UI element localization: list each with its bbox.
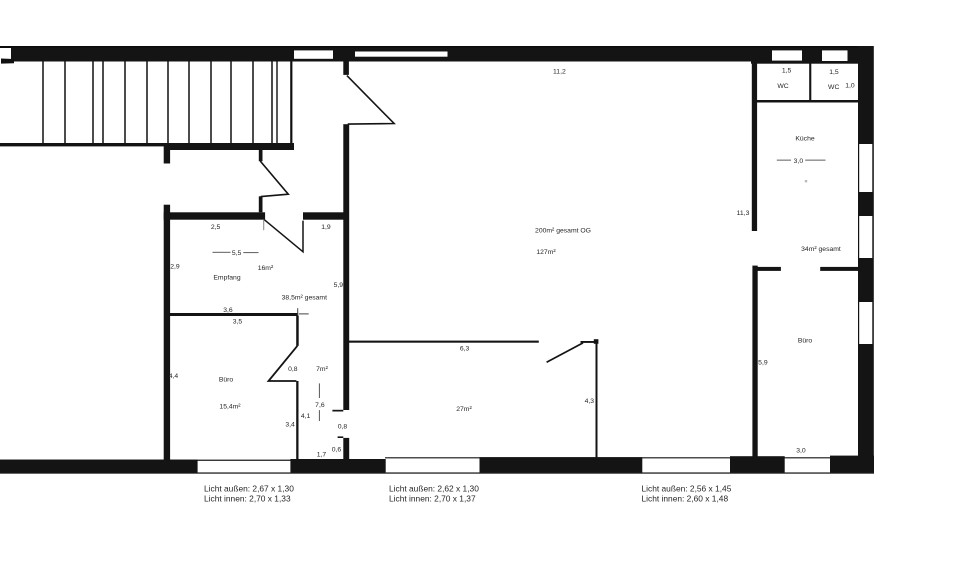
svg-text:11,3: 11,3 [737,210,750,217]
svg-text:Licht außen: 2,56 x 1,45: Licht außen: 2,56 x 1,45 [642,483,732,493]
svg-text:Büro: Büro [219,376,234,383]
svg-text:5,5: 5,5 [232,250,242,257]
svg-text:200m² gesamt OG: 200m² gesamt OG [535,228,591,235]
svg-text:7m²: 7m² [316,366,328,373]
svg-text:3,6: 3,6 [223,307,233,314]
svg-text:0,6: 0,6 [332,447,342,454]
svg-text:WC: WC [828,84,839,91]
svg-text:Küche: Küche [795,135,814,142]
svg-text:27m²: 27m² [456,406,472,413]
svg-text:Büro: Büro [798,337,813,344]
svg-text:34m² gesamt: 34m² gesamt [801,246,841,253]
svg-text:4,3: 4,3 [585,398,595,405]
svg-text:Licht innen: 2,70 x 1,33: Licht innen: 2,70 x 1,33 [204,493,291,503]
svg-text:Licht außen: 2,62 x 1,30: Licht außen: 2,62 x 1,30 [389,483,479,493]
svg-text:3,0: 3,0 [794,158,804,165]
svg-text:5,9: 5,9 [334,282,344,289]
svg-text:2,5: 2,5 [211,224,221,231]
svg-text:15,4m²: 15,4m² [219,403,241,410]
svg-text:4,4: 4,4 [169,373,179,380]
svg-text:1,5: 1,5 [782,68,792,75]
svg-text:0,8: 0,8 [338,423,348,430]
svg-text:1,5: 1,5 [829,69,839,76]
svg-text:3,5: 3,5 [233,318,243,325]
svg-text:2,9: 2,9 [170,263,180,270]
svg-text:1,7: 1,7 [317,452,327,459]
svg-text:Licht innen: 2,70 x 1,37: Licht innen: 2,70 x 1,37 [389,493,476,503]
svg-text:16m²: 16m² [258,265,274,272]
svg-text:4,1: 4,1 [301,413,311,420]
svg-text:WC: WC [777,83,788,90]
svg-text:6,3: 6,3 [460,346,470,353]
svg-text:38,5m² gesamt: 38,5m² gesamt [282,294,327,301]
svg-text:1,0: 1,0 [845,83,855,90]
svg-text:Empfang: Empfang [213,274,240,281]
svg-text:Licht außen: 2,67 x 1,30: Licht außen: 2,67 x 1,30 [204,483,294,493]
svg-text:1,9: 1,9 [321,224,331,231]
svg-text:11,2: 11,2 [553,69,566,76]
svg-text:3,0: 3,0 [796,447,806,454]
svg-text:5,9: 5,9 [758,359,768,366]
svg-text:Licht innen: 2,60 x 1,48: Licht innen: 2,60 x 1,48 [642,493,729,503]
svg-text:127m²: 127m² [536,249,556,256]
svg-text:0,8: 0,8 [288,366,298,373]
svg-text:7,6: 7,6 [315,402,325,409]
svg-text:3,4: 3,4 [285,422,295,429]
